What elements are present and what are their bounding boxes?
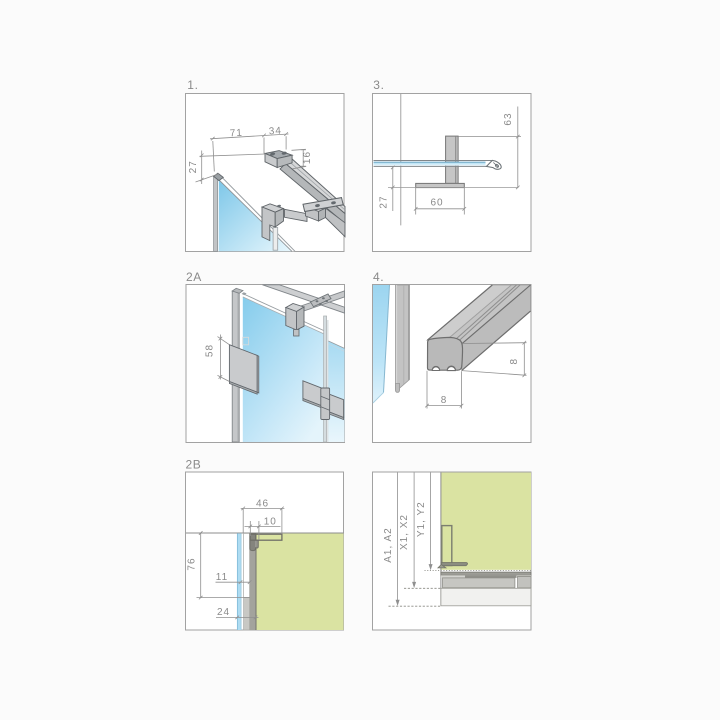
svg-text:34: 34: [268, 126, 282, 138]
svg-text:58: 58: [204, 344, 215, 357]
svg-text:76: 76: [186, 557, 197, 570]
svg-text:16: 16: [302, 151, 313, 164]
svg-text:27: 27: [379, 195, 390, 208]
svg-text:A1, A2: A1, A2: [383, 527, 394, 562]
svg-text:10: 10: [264, 517, 277, 528]
svg-text:27: 27: [188, 160, 199, 173]
svg-text:2A: 2A: [186, 270, 202, 284]
svg-text:4.: 4.: [373, 270, 384, 284]
svg-text:X1, X2: X1, X2: [399, 514, 410, 550]
svg-text:71: 71: [229, 128, 243, 140]
svg-text:3.: 3.: [373, 78, 384, 92]
svg-text:24: 24: [217, 607, 230, 618]
svg-text:63: 63: [503, 112, 514, 125]
svg-text:60: 60: [430, 198, 443, 209]
svg-text:1.: 1.: [187, 78, 198, 92]
svg-text:Y1, Y2: Y1, Y2: [416, 501, 427, 537]
svg-text:11: 11: [216, 572, 228, 583]
svg-text:46: 46: [256, 499, 269, 510]
svg-text:8: 8: [509, 358, 520, 365]
svg-text:8: 8: [441, 395, 448, 406]
svg-text:2B: 2B: [186, 458, 202, 472]
